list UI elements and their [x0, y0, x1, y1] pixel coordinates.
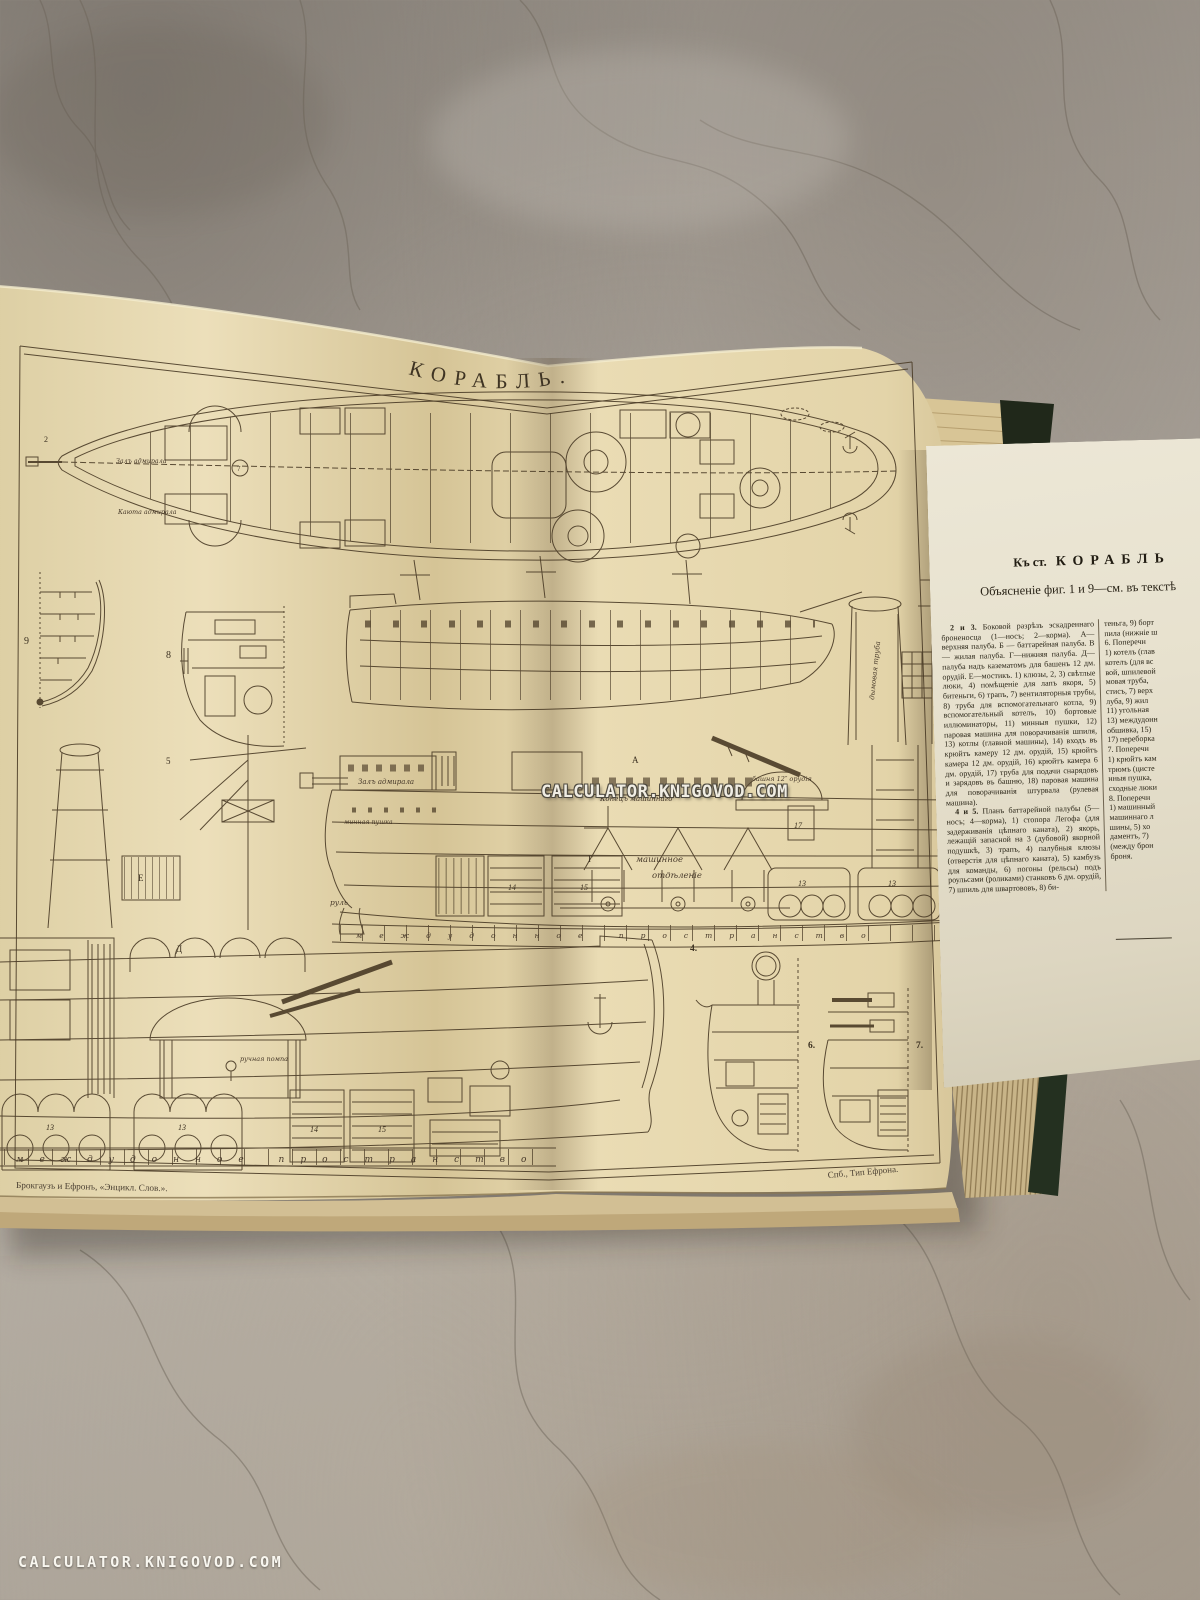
num-13a: 13 — [798, 879, 806, 888]
num-5: 5 — [166, 756, 171, 766]
label-rudder: руль — [330, 898, 348, 907]
sheet-columns: 2 и 3. Боковой разрѣзъ эскадреннаго брон… — [941, 615, 1200, 895]
paragraph-1-text: Боковой разрѣзъ эскадреннаго броненосца … — [941, 619, 1099, 807]
num-15b: 15 — [378, 1125, 386, 1134]
label-admiral-hall-section: Залъ адмирала — [358, 778, 414, 786]
photo-of-open-book: { "photo": { "watermark_center": "CALCUL… — [0, 0, 1200, 1600]
num-4: 4. — [690, 944, 697, 954]
label-double-bottom-lower: междудонное пространство — [16, 1155, 542, 1165]
sheet-header: Къ ст. КОРАБЛЬ — [1013, 551, 1171, 571]
sheet-rule-line — [1116, 937, 1172, 940]
paragraph-1-lead: 2 и 3. — [950, 623, 977, 633]
num-13c: 13 — [46, 1123, 54, 1132]
sheet-subheader: Объясненіе фиг. 1 и 9—см. въ текстѣ — [980, 579, 1176, 599]
num-6: 6. — [808, 1041, 815, 1051]
plate-spread — [0, 286, 952, 1200]
num-14a: 14 — [508, 883, 516, 892]
watermark-bottom-left: CALCULATOR.KNIGOVOD.COM — [18, 1553, 283, 1571]
deck-letter-d: Д — [176, 944, 182, 954]
sheet-paragraph-2: 4 и 5. Планъ баттарейной палубы (5—носъ;… — [946, 804, 1101, 896]
label-mine-gun: минная пушка — [344, 819, 393, 826]
sheet-column-1: 2 и 3. Боковой разрѣзъ эскадреннаго брон… — [941, 619, 1102, 895]
watermark-center: CALCULATOR.KNIGOVOD.COM — [541, 782, 788, 802]
paragraph-2-lead: 4 и 5. — [955, 807, 978, 817]
num-15a: 15 — [580, 883, 588, 892]
sheet-header-title: КОРАБЛЬ — [1056, 551, 1172, 569]
num-8: 8 — [166, 650, 171, 661]
num-14b: 14 — [310, 1125, 318, 1134]
num-13d: 13 — [178, 1123, 186, 1132]
label-double-bottom-upper: междудонное пространство — [356, 931, 883, 940]
num-2: 2 — [44, 435, 48, 444]
sheet-column-2: теньга, 9) борт пила (нижніе ш 6. Попере… — [1098, 615, 1200, 891]
deck-letter-g: Г — [588, 854, 593, 864]
num-13b: 13 — [888, 879, 896, 888]
label-admiral-cabin-plan: Каюта адмирала — [117, 509, 177, 516]
label-engine-room-2: отдѣленіе — [652, 871, 702, 881]
paragraph-2-text: Планъ баттарейной палубы (5—носъ; 4—корм… — [946, 804, 1101, 895]
inserted-explanation-sheet: Къ ст. КОРАБЛЬ Объясненіе фиг. 1 и 9—см.… — [926, 438, 1200, 1088]
label-engine-room-1: машинное — [636, 855, 683, 865]
deck-letter-e: Е — [138, 873, 144, 883]
num-9: 9 — [24, 636, 29, 647]
deck-letter-a: А — [632, 755, 639, 765]
label-admiral-hall-plan: Залъ адмирала — [116, 458, 167, 465]
num-17: 17 — [794, 821, 803, 830]
label-hand-pump: ручная помпа — [240, 1055, 288, 1063]
num-7-circled: 7 — [237, 465, 241, 473]
num-7: 7. — [916, 1041, 923, 1051]
sheet-header-prefix: Къ ст. — [1013, 555, 1047, 570]
sheet-paragraph-1: 2 и 3. Боковой разрѣзъ эскадреннаго брон… — [941, 619, 1099, 808]
